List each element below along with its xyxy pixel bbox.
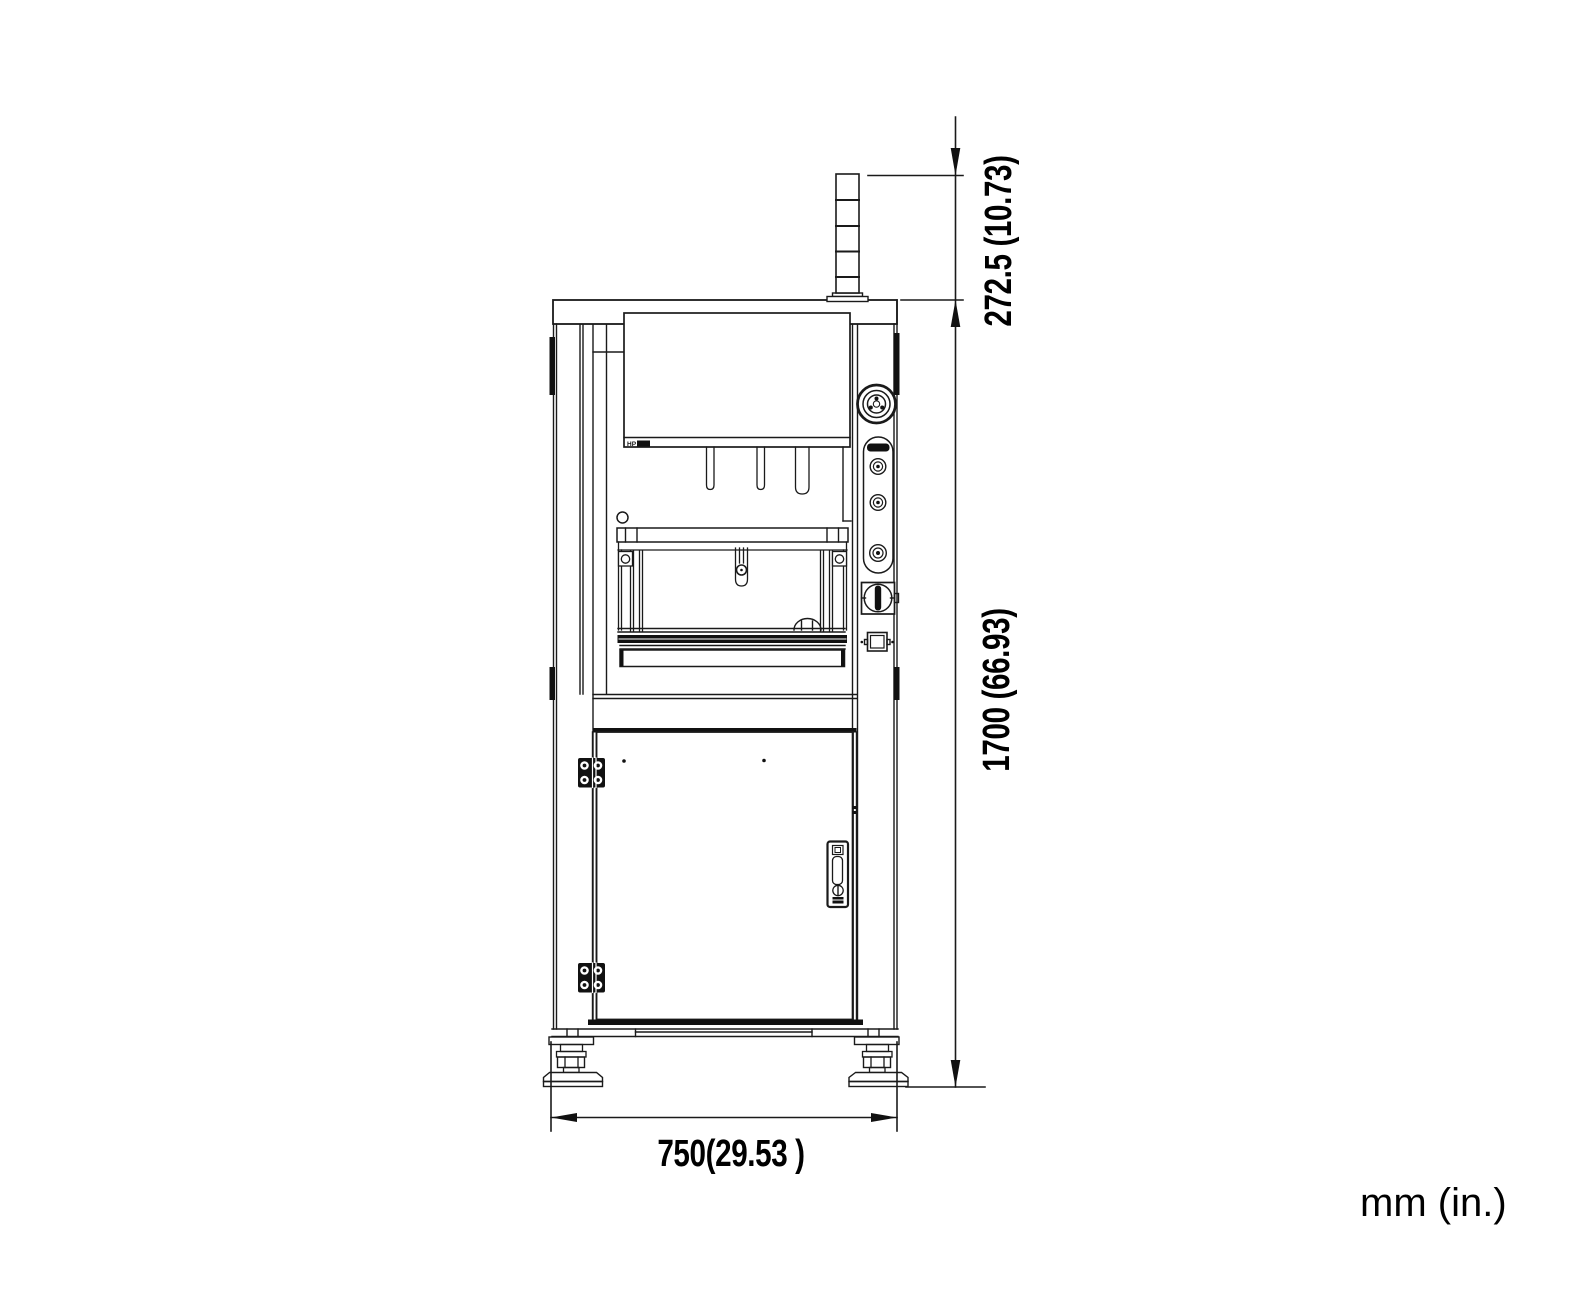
power-connector bbox=[861, 633, 894, 652]
signal-tower-light bbox=[827, 174, 868, 302]
door-hinge-bottom bbox=[578, 963, 605, 993]
arrowhead-left-width bbox=[551, 1113, 577, 1122]
door-handle bbox=[828, 842, 849, 908]
pilot-hole bbox=[617, 512, 628, 523]
panel-model-label: HP bbox=[627, 441, 637, 448]
side-tab-left-upper bbox=[550, 337, 556, 395]
machine-base bbox=[552, 1029, 898, 1037]
door-screw-right bbox=[762, 759, 766, 763]
rod-3 bbox=[796, 447, 810, 494]
door-screw-left bbox=[622, 759, 626, 763]
arrowhead-down-floor bbox=[951, 1060, 961, 1087]
control-panel-label-strip bbox=[867, 444, 890, 452]
press-beam bbox=[617, 528, 848, 542]
dimension-label-base-width: 750(29.53 ) bbox=[641, 1131, 820, 1177]
rod-2 bbox=[757, 447, 765, 490]
side-tab-right-upper bbox=[894, 333, 900, 395]
panel-model-badge bbox=[637, 441, 650, 447]
arrowhead-down-tower bbox=[951, 148, 961, 176]
rod-1 bbox=[707, 447, 715, 490]
machine-line-art: HP bbox=[0, 0, 1576, 1300]
tooling-rods bbox=[707, 447, 810, 494]
dimension-label-tower-height: 272.5 (10.73) bbox=[976, 151, 1022, 330]
emergency-stop-button bbox=[858, 385, 896, 423]
press-frame bbox=[618, 542, 847, 631]
rotary-main-switch bbox=[862, 583, 899, 615]
units-note: mm (in.) bbox=[1360, 1181, 1507, 1226]
work-tray bbox=[618, 619, 848, 667]
side-tab-left-lower bbox=[550, 667, 556, 700]
center-hanger bbox=[736, 548, 748, 586]
door-hinge-top bbox=[578, 758, 605, 788]
control-button-panel bbox=[864, 437, 894, 573]
leveling-foot-right bbox=[849, 1037, 908, 1087]
arrowhead-up-body bbox=[951, 300, 961, 327]
side-tab-right-lower bbox=[894, 667, 900, 700]
dimension-label-overall-height: 1700 (66.93) bbox=[974, 600, 1020, 779]
leveling-foot-left bbox=[544, 1037, 603, 1087]
drawing-canvas: HP bbox=[0, 0, 1576, 1300]
head-panel: HP bbox=[624, 313, 851, 521]
arrowhead-right-width bbox=[871, 1113, 897, 1122]
cabinet-door bbox=[588, 732, 863, 1025]
